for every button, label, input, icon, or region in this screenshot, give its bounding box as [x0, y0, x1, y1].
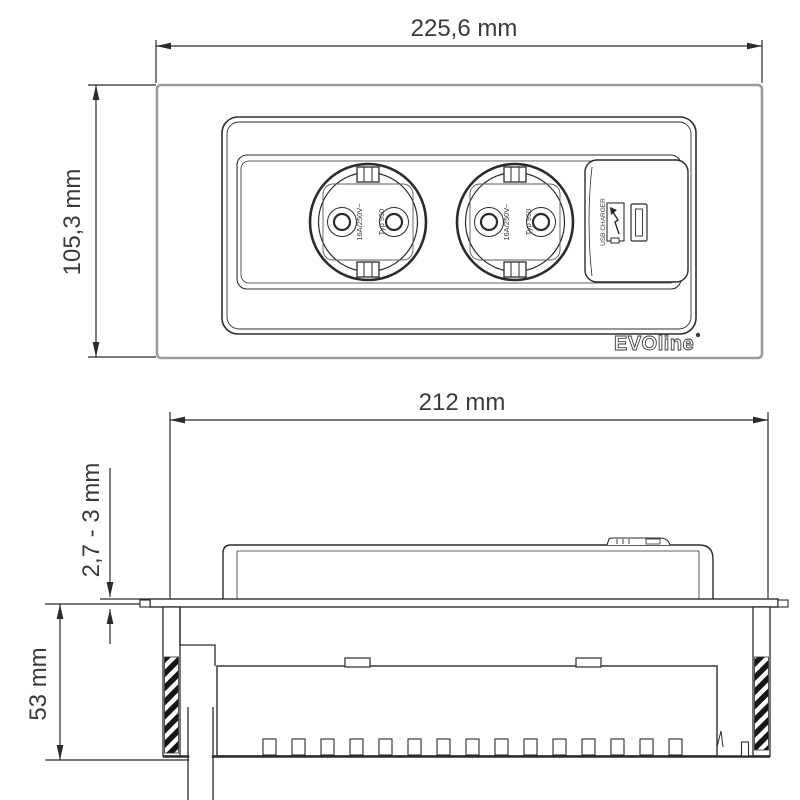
latch-flap-detail: [717, 731, 723, 747]
arrowhead-left-icon: [156, 43, 171, 50]
grip-tape-left: [165, 657, 179, 753]
usb-a-port: [631, 204, 647, 241]
usb-charger-label: USB CHARGER: [600, 198, 607, 246]
arrowhead-up-icon: [107, 609, 114, 624]
flange-end-tab-left: [140, 600, 150, 607]
vent-teeth: [263, 739, 682, 755]
top-view: 16A/250V~ Typ 950 16A/250V~ Typ 950: [157, 85, 762, 358]
arrowhead-down-icon: [107, 582, 114, 597]
flange-end-tab-right: [778, 600, 788, 607]
arrowhead-up-icon: [93, 85, 100, 100]
housing-tab: [576, 658, 601, 667]
earth-clip-bottom: [504, 262, 526, 277]
technical-drawing-page: { "top_view": { "dim_width_label": "225,…: [0, 0, 800, 800]
housing-step-left: [180, 607, 215, 666]
arrowhead-left-icon: [170, 417, 185, 424]
earth-clip-top: [504, 167, 526, 182]
dim-label-depth: 53 mm: [25, 647, 52, 720]
arrowhead-down-icon: [57, 745, 64, 760]
housing-tab: [345, 658, 370, 667]
lid-latch: [607, 538, 670, 545]
body-above-table: [223, 538, 713, 601]
earth-clip-bottom: [357, 262, 379, 277]
socket-rating-label: 16A/250V~: [502, 203, 511, 241]
drawing-canvas: 225,6 mm 105,3 mm 212 mm 2,7 - 3 mm: [0, 0, 800, 800]
dimension-plate-thickness: 2,7 - 3 mm: [78, 463, 150, 644]
dim-label-side-width: 212 mm: [419, 389, 506, 416]
socket-rating-label: 16A/250V~: [355, 203, 364, 241]
socket-type-label: Typ 950: [524, 209, 533, 236]
earth-clip-top: [357, 167, 379, 182]
arrowhead-right-icon: [747, 43, 762, 50]
dim-label-top-height: 105,3 mm: [59, 169, 86, 276]
grip-tape-right: [755, 657, 769, 750]
dimension-top-height: 105,3 mm: [59, 85, 156, 357]
dimension-top-width: 225,6 mm: [156, 15, 762, 83]
usb-plug-arrow-icon: [607, 203, 624, 243]
cable-channel: [188, 707, 213, 800]
side-view: [140, 538, 788, 800]
dim-label-plate: 2,7 - 3 mm: [78, 463, 105, 578]
usb-charger-module: USB CHARGER: [585, 160, 688, 282]
small-foot-detail: [742, 742, 749, 756]
brand-logo: EVOline: [614, 333, 700, 355]
socket-type-label: Typ 950: [377, 209, 386, 236]
arrowhead-up-icon: [57, 604, 64, 619]
registered-dot-icon: [696, 333, 700, 337]
arrowhead-right-icon: [753, 417, 768, 424]
under-table-housing: [163, 607, 770, 800]
dim-label-top-width: 225,6 mm: [411, 15, 518, 42]
arrowhead-down-icon: [93, 342, 100, 357]
brand-logo-text: EVOline: [614, 333, 694, 355]
mounting-flange: [140, 599, 788, 607]
